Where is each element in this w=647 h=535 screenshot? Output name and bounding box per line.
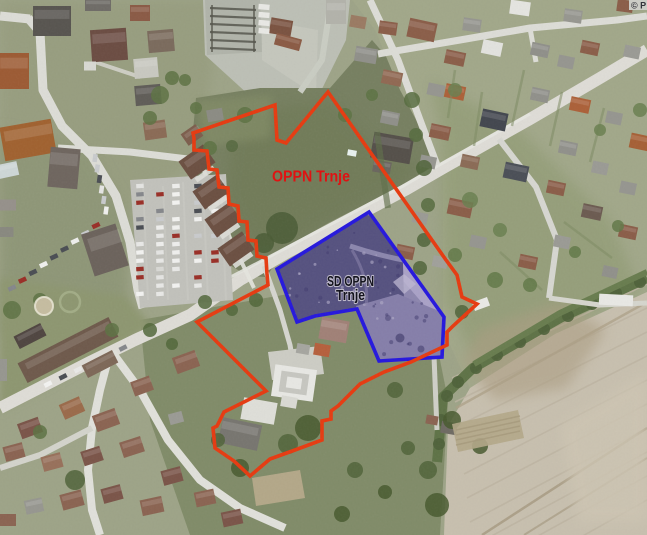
svg-text:OPPN Trnje: OPPN Trnje (272, 169, 350, 186)
svg-text:Trnje: Trnje (336, 287, 365, 304)
svg-text:© P: © P (631, 1, 646, 11)
